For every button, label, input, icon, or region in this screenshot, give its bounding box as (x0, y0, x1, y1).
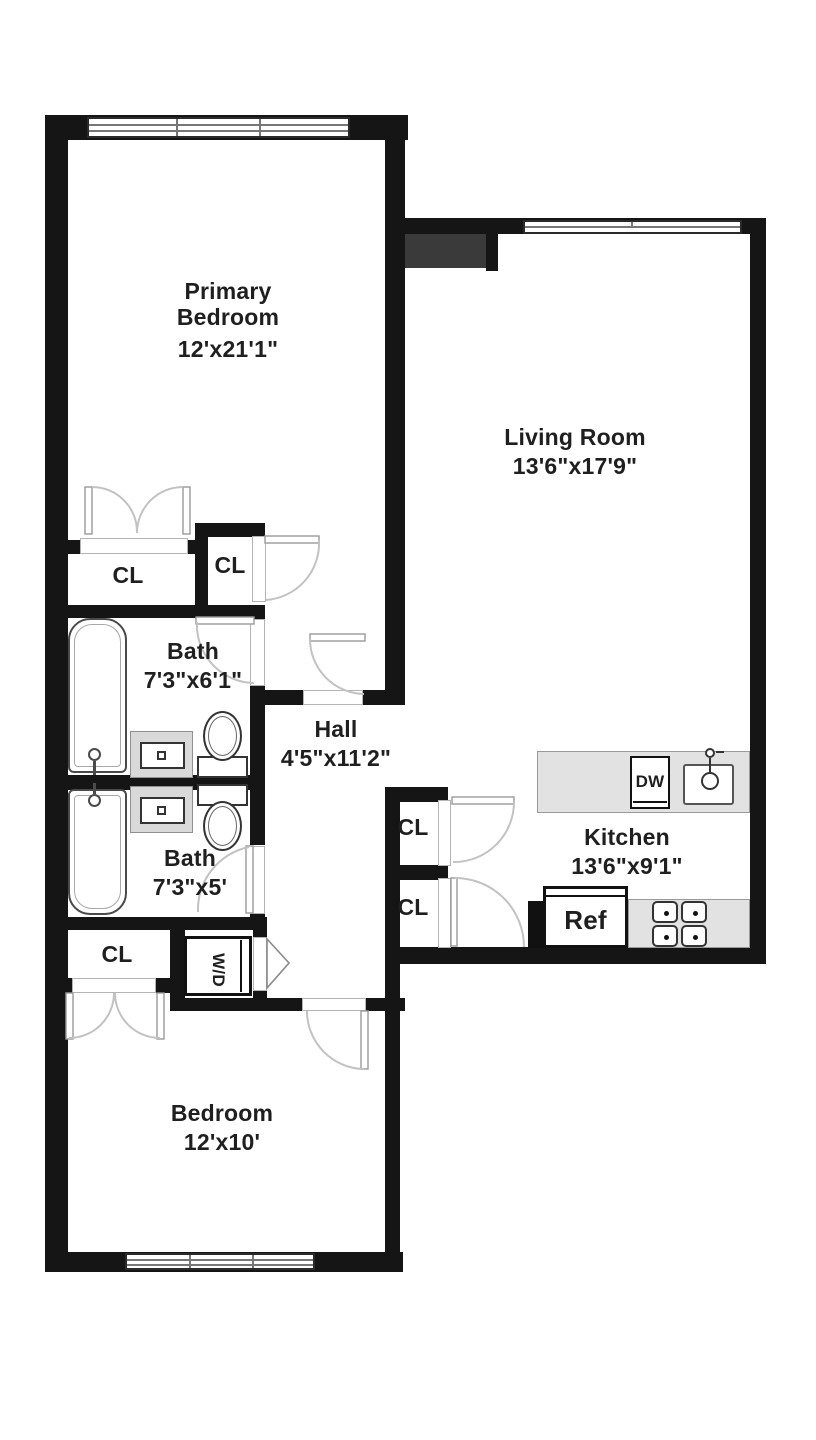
room-dims: 4'5"x11'2" (276, 745, 396, 771)
refrigerator-label: Ref (546, 905, 625, 935)
room-name: Bedroom (142, 1100, 302, 1126)
tub-faucet-stem (93, 783, 96, 794)
door-leaf (196, 617, 254, 624)
window-divider (259, 119, 261, 136)
window-divider (631, 222, 633, 227)
floor-plan: W/D DW Ref (0, 0, 816, 1440)
room-label-kitchen: Kitchen 13'6"x9'1" (547, 824, 707, 879)
door-arc (310, 639, 364, 694)
wall (253, 917, 267, 939)
tub-faucet-icon (88, 748, 101, 761)
doorway-kitchen-closet-upper (438, 800, 451, 866)
window-divider (189, 1255, 191, 1268)
burner-dot (664, 911, 669, 916)
burner-dot (664, 935, 669, 940)
doorway-bedroom-closet (72, 978, 156, 993)
entry-vestibule-shadow (400, 232, 488, 268)
tub-faucet-icon (88, 794, 101, 807)
window-living-room (523, 220, 742, 234)
door-arc (92, 487, 137, 533)
doorway-suite-hall (303, 690, 363, 705)
room-dims: 12'x10' (142, 1129, 302, 1155)
door-leaf (451, 878, 457, 946)
vanity-sink (130, 731, 193, 778)
door-leaf (452, 797, 514, 804)
room-dims: 7'3"x6'1" (133, 667, 253, 693)
doorway-bedroom (302, 998, 366, 1011)
wall (365, 998, 405, 1011)
doorway-washer-dryer (253, 937, 267, 991)
window-mullion (127, 1264, 313, 1266)
dishwasher-door-line (633, 801, 667, 803)
wall (45, 917, 265, 930)
room-name: Kitchen (547, 824, 707, 850)
window-mullion (127, 1259, 313, 1261)
room-dims: 13'6"x17'9" (495, 453, 655, 479)
sink-faucet-base (701, 772, 719, 790)
toilet-bowl-inner (208, 806, 237, 846)
room-label-hall: Hall 4'5"x11'2" (276, 716, 396, 771)
wall (750, 218, 766, 964)
room-name: Bath (133, 845, 247, 871)
refrigerator-door-line (546, 895, 625, 897)
room-name: Living Room (495, 424, 655, 450)
closet-label-kitchen-lower: CL (390, 894, 436, 920)
room-label-bath-1: Bath 7'3"x6'1" (133, 638, 253, 693)
bathtub (68, 789, 127, 915)
door-arc (266, 540, 319, 600)
stove-burner (652, 901, 678, 923)
window-divider (176, 119, 178, 136)
wall (45, 605, 265, 618)
room-name: Primary (148, 278, 308, 304)
doorway-bath-2 (250, 846, 265, 914)
door-leaf (183, 487, 190, 534)
wall (250, 684, 265, 845)
wall (250, 690, 305, 705)
vanity-sink (130, 786, 193, 833)
wall (45, 115, 68, 1270)
bathtub-basin (74, 624, 121, 767)
washer-dryer-door-swing (267, 939, 289, 988)
room-dims: 7'3"x5' (133, 874, 247, 900)
closet-label-kitchen-upper: CL (390, 814, 436, 840)
room-name: Hall (276, 716, 396, 742)
washer-dryer-label: W/D (205, 939, 231, 1001)
door-leaf (265, 536, 319, 543)
bathtub-basin (74, 795, 121, 909)
door-leaf (157, 993, 164, 1039)
door-arc (455, 878, 524, 947)
tub-faucet-stem (93, 761, 96, 775)
window-divider (252, 1255, 254, 1268)
vanity-drain (157, 751, 166, 760)
wall (385, 787, 400, 1270)
door-arc (137, 487, 183, 533)
window-bedroom (125, 1253, 315, 1270)
window-mullion (89, 124, 348, 126)
room-name: Bedroom (148, 304, 308, 330)
toilet-bowl-inner (208, 716, 237, 756)
wall (363, 690, 405, 705)
window-primary-bedroom (87, 117, 350, 138)
room-label-bedroom: Bedroom 12'x10' (142, 1100, 302, 1155)
room-label-bath-2: Bath 7'3"x5' (133, 845, 247, 900)
closet-label-primary: CL (98, 562, 158, 588)
window-mullion (89, 130, 348, 132)
stove-burner (681, 901, 707, 923)
washer-dryer-unit: W/D (184, 936, 252, 996)
room-dims: 12'x21'1" (148, 336, 308, 362)
door-leaf (310, 634, 365, 641)
burner-dot (693, 935, 698, 940)
refrigerator: Ref (543, 886, 628, 948)
room-label-primary-bedroom: Primary Bedroom 12'x21'1" (148, 278, 308, 362)
dishwasher-label: DW (632, 773, 668, 791)
vanity-drain (157, 806, 166, 815)
room-dims: 13'6"x9'1" (547, 853, 707, 879)
door-arc (307, 1011, 364, 1069)
room-name: Bath (133, 638, 253, 664)
wall (45, 540, 83, 554)
room-label-living-room: Living Room 13'6"x17'9" (495, 424, 655, 479)
wall (385, 947, 766, 964)
washer-dryer-door-line (240, 940, 242, 992)
wall (195, 523, 265, 537)
door-leaf (85, 487, 92, 534)
sink-faucet-icon (705, 748, 715, 758)
doorway-kitchen-closet-lower (438, 878, 451, 948)
door-arc (115, 993, 160, 1038)
wall (486, 228, 498, 271)
wall (155, 978, 183, 993)
refrigerator-pedestal (528, 901, 544, 948)
closet-label-bedroom: CL (92, 941, 142, 967)
stove-burner (652, 925, 678, 947)
doorway-primary-closet (80, 538, 188, 554)
burner-dot (693, 911, 698, 916)
wall (170, 998, 302, 1011)
door-leaf (361, 1011, 368, 1069)
dishwasher: DW (630, 756, 670, 809)
sink-faucet-tick (716, 751, 724, 753)
door-arc (453, 801, 514, 862)
closet-label-suite: CL (205, 552, 255, 578)
door-arc (69, 993, 114, 1038)
stove-burner (681, 925, 707, 947)
